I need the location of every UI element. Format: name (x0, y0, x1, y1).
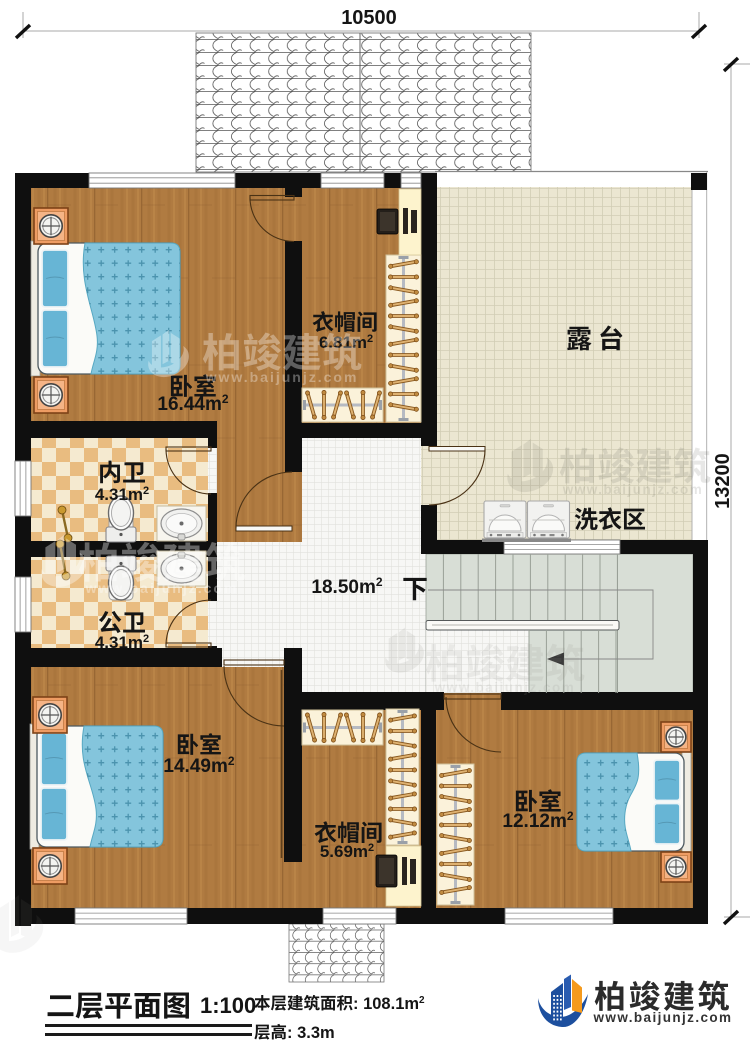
svg-text:18.50m2: 18.50m2 (311, 575, 382, 598)
svg-text:4.31m2: 4.31m2 (95, 485, 149, 504)
svg-text:: 108.1m2: : 108.1m2 (353, 995, 425, 1013)
svg-text:www.baijunjz.com: www.baijunjz.com (434, 680, 576, 695)
svg-text:13200: 13200 (712, 453, 734, 509)
svg-text:1:100: 1:100 (200, 993, 256, 1018)
svg-text:12.12m2: 12.12m2 (502, 809, 573, 832)
svg-text:www.baijunjz.com: www.baijunjz.com (562, 482, 704, 497)
svg-text:10500: 10500 (341, 7, 397, 29)
svg-text:www.baijunjz.com: www.baijunjz.com (205, 369, 359, 385)
svg-text:5.69m2: 5.69m2 (320, 842, 374, 861)
svg-text:www.baijunjz.com: www.baijunjz.com (593, 1010, 733, 1025)
svg-text:www.baijunjz.com: www.baijunjz.com (85, 580, 239, 596)
svg-text:14.49m2: 14.49m2 (163, 754, 234, 777)
svg-text:: 3.3m: : 3.3m (287, 1024, 335, 1042)
svg-text:4.31m2: 4.31m2 (95, 633, 149, 652)
svg-text:16.44m2: 16.44m2 (157, 392, 228, 415)
